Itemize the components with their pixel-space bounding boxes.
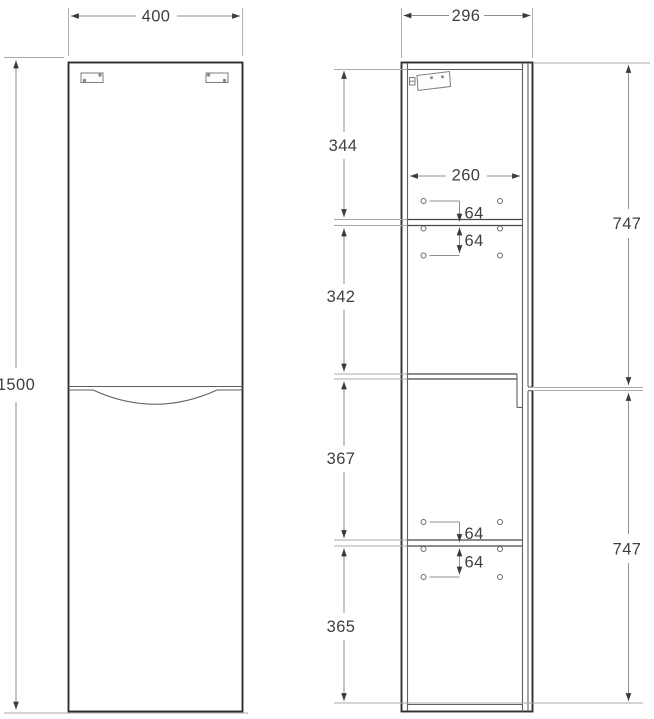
upper-pin-above-label: 64 xyxy=(465,205,484,223)
hinge-plate-right xyxy=(206,73,228,83)
dim-upper-pin-offsets: 64 64 xyxy=(430,201,484,256)
front-view-dimensions: 400 1500 xyxy=(0,8,248,714)
dim-section-top: 344 xyxy=(329,71,358,217)
left-extension-lines xyxy=(334,70,643,704)
front-view xyxy=(69,63,243,712)
section-lower-middle-label: 367 xyxy=(327,450,356,468)
front-width-label: 400 xyxy=(142,8,171,26)
dim-section-bottom: 365 xyxy=(327,549,356,702)
lower-shelf-pin-holes xyxy=(421,520,503,580)
hinge-plate-left xyxy=(81,73,103,83)
door-gap-break xyxy=(530,387,534,390)
side-view-dimensions: 296 260 344 342 xyxy=(327,7,650,703)
upper-shelf-pin-holes xyxy=(421,199,503,259)
section-top-label: 344 xyxy=(329,137,358,155)
side-cabinet-outline xyxy=(402,63,533,712)
lower-pin-below-label: 64 xyxy=(465,554,484,572)
side-view xyxy=(402,63,535,712)
dim-front-height: 1500 xyxy=(0,58,248,714)
dim-side-depth: 296 xyxy=(402,7,533,58)
lower-door-height-label: 747 xyxy=(613,541,642,559)
dim-front-width: 400 xyxy=(69,8,243,57)
side-hinge-plate xyxy=(410,72,451,91)
upper-pin-below-label: 64 xyxy=(465,232,484,250)
dim-lower-pin-offsets: 64 64 xyxy=(430,522,484,577)
door-split-and-handle-curve xyxy=(69,387,243,405)
dim-shelf-width: 260 xyxy=(410,167,520,185)
section-bottom-label: 365 xyxy=(327,618,356,636)
dim-section-upper-middle: 342 xyxy=(327,229,356,372)
technical-drawing-canvas: 400 1500 xyxy=(0,0,654,719)
side-depth-label: 296 xyxy=(452,7,481,25)
dim-upper-door-height: 747 xyxy=(613,65,642,385)
upper-door-height-label: 747 xyxy=(613,215,642,233)
section-upper-middle-label: 342 xyxy=(327,288,356,306)
dim-section-lower-middle: 367 xyxy=(327,382,356,539)
cabinet-dimension-drawing: 400 1500 xyxy=(0,0,654,719)
shelf-width-label: 260 xyxy=(452,167,481,185)
front-height-label: 1500 xyxy=(0,376,35,394)
middle-partition xyxy=(408,374,523,408)
dim-lower-door-height: 747 xyxy=(613,393,642,701)
lower-pin-above-label: 64 xyxy=(465,525,484,543)
